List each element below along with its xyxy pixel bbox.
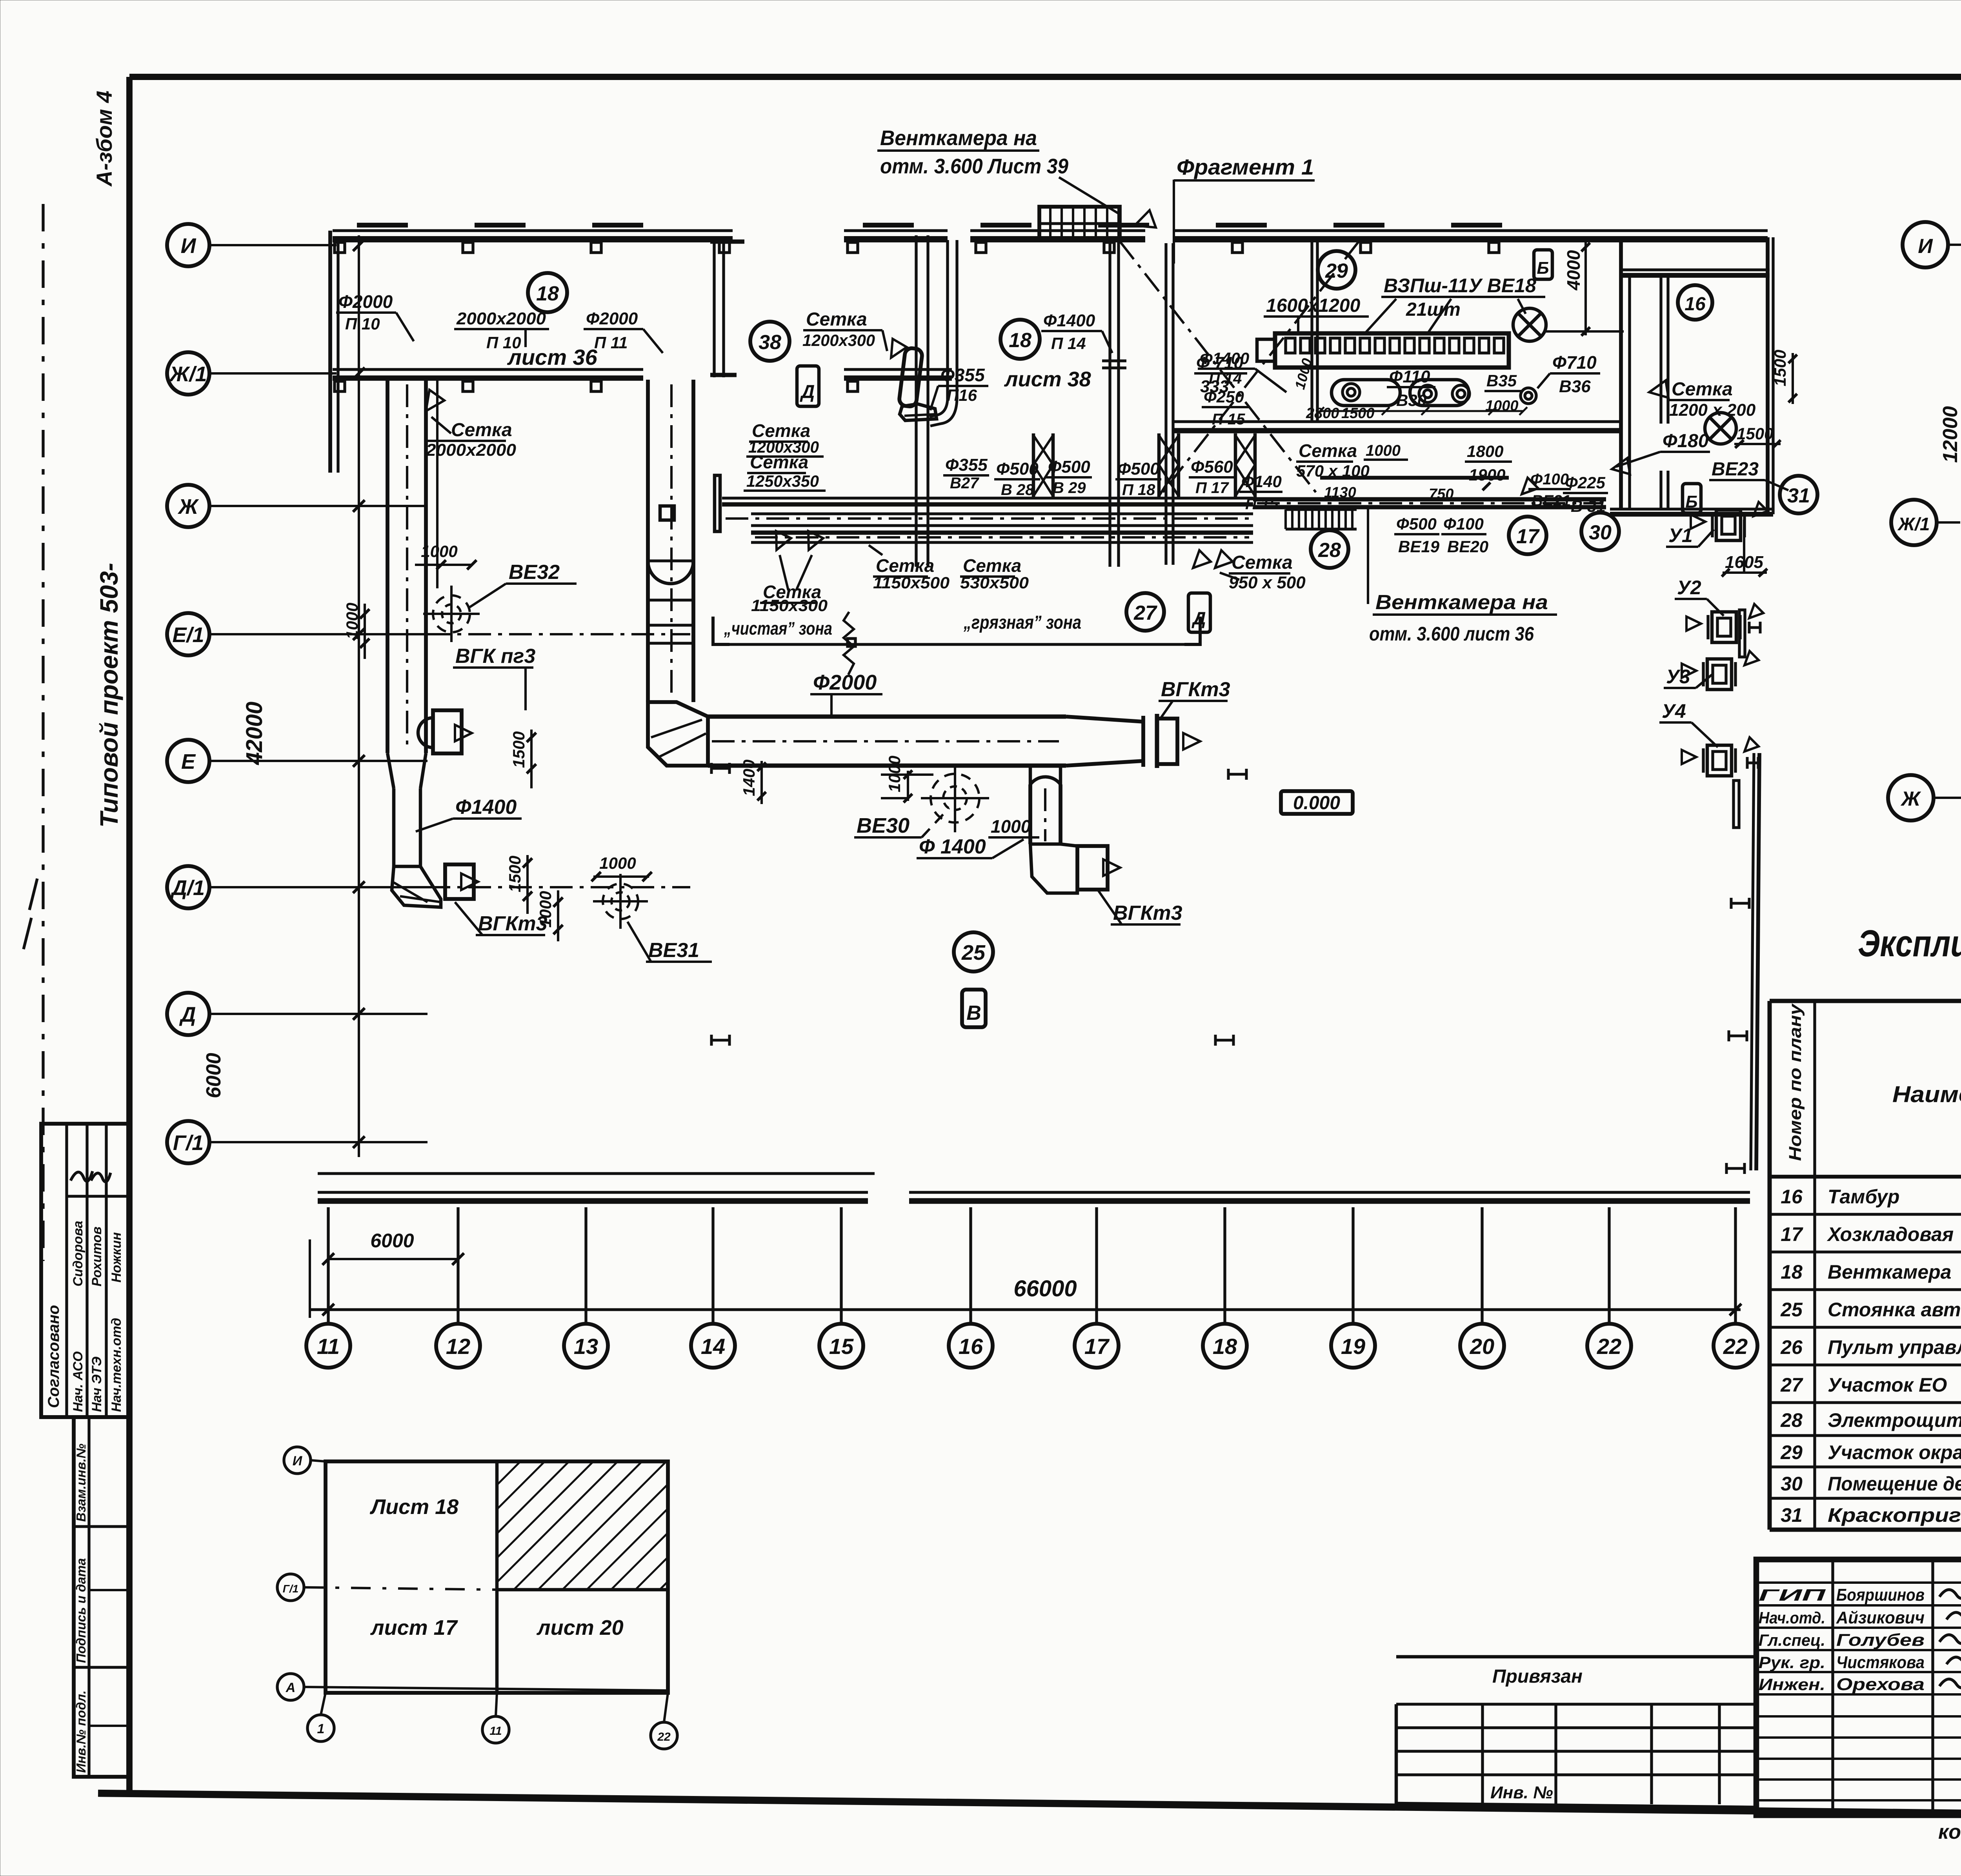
svg-text:0.000: 0.000 (1293, 793, 1340, 813)
svg-text:2000х2000: 2000х2000 (426, 440, 517, 460)
svg-text:16: 16 (959, 1334, 983, 1359)
svg-text:Ф500: Ф500 (996, 459, 1039, 479)
svg-text:П16: П16 (947, 386, 977, 404)
svg-text:1000: 1000 (343, 603, 361, 639)
svg-text:Чистякова: Чистякова (1836, 1653, 1925, 1672)
svg-text:333: 333 (1200, 377, 1229, 396)
svg-text:22: 22 (1597, 1334, 1621, 1359)
svg-text:Д: Д (1191, 608, 1206, 628)
svg-text:Б: Б (1685, 492, 1697, 511)
svg-text:ВЕ30: ВЕ30 (857, 814, 910, 837)
svg-text:П 15: П 15 (1245, 495, 1279, 513)
svg-text:Бояршинов: Бояршинов (1836, 1585, 1925, 1605)
svg-text:31: 31 (1787, 484, 1810, 507)
svg-text:Экспликация помещений: Экспликация помещений (1858, 923, 1961, 964)
svg-text:Сетка: Сетка (806, 309, 867, 330)
svg-text:1500: 1500 (1771, 350, 1789, 386)
svg-text:У4: У4 (1662, 700, 1686, 722)
svg-text:22: 22 (657, 1730, 671, 1743)
svg-text:750: 750 (1429, 486, 1453, 502)
svg-text:ВЕ20: ВЕ20 (1447, 537, 1488, 556)
svg-text:Голубев: Голубев (1836, 1630, 1925, 1650)
svg-text:Гл.спец.: Гл.спец. (1759, 1631, 1825, 1649)
svg-text:Г/1: Г/1 (283, 1583, 299, 1595)
svg-text:Нач.отд.: Нач.отд. (1759, 1609, 1825, 1627)
svg-text:1200х300: 1200х300 (802, 331, 875, 349)
svg-text:20: 20 (1470, 1334, 1494, 1359)
svg-text:1000: 1000 (991, 816, 1031, 837)
svg-text:ГИП: ГИП (1759, 1586, 1826, 1604)
svg-text:В35: В35 (1486, 371, 1517, 390)
svg-text:31: 31 (1781, 1504, 1803, 1526)
svg-text:950 х 500: 950 х 500 (1229, 573, 1306, 592)
svg-text:П 10: П 10 (345, 315, 380, 333)
svg-text:Ж/1: Ж/1 (1897, 514, 1930, 534)
svg-text:Хозкладовая: Хозкладовая (1826, 1223, 1954, 1245)
svg-text:21шт: 21шт (1406, 299, 1461, 320)
svg-text:ВЗПш-11У ВЕ18: ВЗПш-11У ВЕ18 (1384, 275, 1536, 297)
svg-text:Ф1400: Ф1400 (1043, 311, 1095, 330)
svg-text:26: 26 (1780, 1336, 1803, 1358)
svg-text:Инжен.: Инжен. (1759, 1675, 1825, 1694)
svg-text:1150х500: 1150х500 (873, 573, 950, 592)
svg-text:лист 17: лист 17 (370, 1616, 458, 1639)
svg-text:16: 16 (1781, 1186, 1803, 1208)
svg-text:В: В (966, 1002, 981, 1024)
svg-text:25: 25 (961, 941, 986, 964)
svg-text:Ф560: Ф560 (1191, 457, 1233, 477)
svg-text:Ф2000: Ф2000 (338, 291, 393, 312)
svg-text:25: 25 (1780, 1299, 1803, 1321)
svg-text:Инв. №: Инв. № (1490, 1783, 1553, 1802)
svg-text:Ф140: Ф140 (1241, 472, 1282, 491)
svg-text:Ф355: Ф355 (945, 455, 988, 475)
svg-text:1800: 1800 (1467, 442, 1503, 460)
svg-text:1: 1 (317, 1721, 325, 1736)
svg-text:лист 20: лист 20 (536, 1616, 624, 1639)
svg-text:11: 11 (489, 1725, 502, 1738)
svg-text:ВЕ23: ВЕ23 (1712, 459, 1759, 480)
svg-text:Электрощитовая: Электрощитовая (1828, 1409, 1961, 1431)
svg-text:Тамбур: Тамбур (1828, 1186, 1899, 1208)
svg-text:1000: 1000 (1485, 398, 1519, 414)
svg-text:П 15: П 15 (1212, 411, 1245, 428)
svg-text:18: 18 (1781, 1261, 1803, 1283)
svg-text:Сетка: Сетка (876, 555, 934, 576)
svg-text:Г/1: Г/1 (173, 1131, 204, 1155)
svg-text:Сетка: Сетка (963, 555, 1021, 576)
svg-text:ВЕ32: ВЕ32 (509, 561, 560, 584)
svg-text:Помещение дежурного механика: Помещение дежурного механика (1828, 1473, 1961, 1495)
svg-text:1500: 1500 (1341, 405, 1375, 422)
svg-text:Сетка: Сетка (1672, 379, 1733, 400)
svg-text:Венткамера на: Венткамера на (880, 126, 1037, 150)
svg-text:Д: Д (800, 382, 815, 402)
svg-text:Ф100: Ф100 (1443, 515, 1484, 533)
svg-text:28: 28 (1780, 1409, 1803, 1431)
svg-text:Рохитов: Рохитов (89, 1226, 104, 1286)
svg-text:И: И (181, 234, 196, 258)
svg-text:В27: В27 (950, 475, 979, 492)
svg-text:ВЕ19: ВЕ19 (1398, 537, 1440, 556)
svg-text:ВГКт3: ВГКт3 (1161, 678, 1230, 701)
svg-text:Участок окраски: Участок окраски (1828, 1441, 1961, 1463)
svg-text:лист 36: лист 36 (507, 345, 598, 369)
svg-text:19: 19 (1341, 1334, 1365, 1359)
svg-text:Орехова: Орехова (1836, 1675, 1925, 1694)
svg-text:Д/1: Д/1 (170, 876, 205, 900)
svg-text:Е/1: Е/1 (172, 623, 204, 647)
svg-text:16: 16 (1684, 294, 1706, 315)
svg-text:В30: В30 (1396, 391, 1426, 409)
svg-text:А-збом 4: А-збом 4 (92, 91, 116, 187)
svg-text:14: 14 (701, 1334, 725, 1359)
svg-text:Нач. АСО: Нач. АСО (71, 1351, 85, 1412)
svg-text:У3: У3 (1666, 666, 1690, 688)
svg-text:2000х2000: 2000х2000 (456, 309, 546, 328)
svg-text:Ф 1400: Ф 1400 (919, 835, 986, 858)
svg-text:Д: Д (179, 1003, 196, 1026)
svg-text:П 11: П 11 (594, 333, 628, 352)
svg-text:Пульт управления: Пульт управления (1828, 1336, 1961, 1358)
svg-text:4000: 4000 (1563, 250, 1584, 291)
svg-text:отм. 3.600 лист 36: отм. 3.600 лист 36 (1369, 623, 1534, 645)
svg-text:30: 30 (1781, 1473, 1803, 1495)
svg-text:Сидорова: Сидорова (71, 1221, 85, 1286)
svg-text:17: 17 (1084, 1334, 1110, 1359)
svg-text:29: 29 (1325, 260, 1348, 282)
svg-text:Ф110: Ф110 (1389, 367, 1430, 386)
svg-text:Инв.№ подл.: Инв.№ подл. (74, 1690, 88, 1773)
svg-text:18: 18 (1009, 329, 1031, 352)
svg-text:38: 38 (759, 331, 781, 354)
svg-text:27: 27 (1133, 602, 1157, 624)
svg-text:Б: Б (1537, 258, 1549, 278)
svg-text:1400: 1400 (740, 760, 758, 796)
svg-text:В 28: В 28 (1001, 481, 1034, 499)
svg-text:18: 18 (1213, 1334, 1237, 1359)
svg-text:Е: Е (181, 750, 196, 773)
svg-text:Стоянка автомобилей: Стоянка автомобилей (1828, 1299, 1961, 1321)
svg-text:Ф 710: Ф 710 (1196, 353, 1244, 373)
svg-text:Ж: Ж (177, 495, 199, 519)
svg-text:12000: 12000 (1939, 406, 1961, 463)
svg-text:отм. 3.600 Лист 39: отм. 3.600 Лист 39 (880, 155, 1068, 178)
svg-text:Лист 18: Лист 18 (369, 1495, 458, 1519)
svg-text:2800: 2800 (1306, 405, 1339, 422)
svg-text:Фрагмент 1: Фрагмент 1 (1177, 155, 1314, 179)
svg-text:ВЕ31: ВЕ31 (648, 939, 699, 962)
svg-text:Нач.техн.отд: Нач.техн.отд (109, 1318, 124, 1412)
svg-text:1250х350: 1250х350 (746, 472, 819, 490)
svg-text:лист 38: лист 38 (1004, 368, 1091, 391)
svg-text:29: 29 (1780, 1441, 1803, 1463)
svg-text:17: 17 (1781, 1223, 1803, 1245)
svg-text:ВЕ21: ВЕ21 (1532, 492, 1571, 509)
svg-text:1130: 1130 (1324, 484, 1356, 501)
svg-text:„грязная” зона: „грязная” зона (963, 612, 1081, 633)
svg-text:Сетка: Сетка (1232, 552, 1293, 573)
svg-text:18: 18 (536, 282, 559, 305)
svg-text:13: 13 (574, 1334, 598, 1359)
svg-text:Ф180: Ф180 (1663, 431, 1709, 451)
svg-text:28: 28 (1318, 539, 1341, 562)
svg-text:Ф2000: Ф2000 (586, 309, 638, 328)
svg-text:1150х300: 1150х300 (751, 596, 828, 615)
svg-text:В36: В36 (1559, 377, 1591, 396)
svg-text:Ф500: Ф500 (1117, 459, 1160, 479)
svg-text:Ж: Ж (1900, 788, 1921, 810)
svg-text:Краскоприготовительная: Краскоприготовительная (1828, 1504, 1961, 1526)
svg-text:Ф500: Ф500 (1396, 515, 1437, 533)
svg-text:12: 12 (446, 1334, 470, 1359)
svg-text:Номер по плану: Номер по плану (1786, 1003, 1805, 1161)
svg-text:П 17: П 17 (1195, 479, 1229, 497)
svg-text:1000: 1000 (421, 542, 457, 560)
svg-text:Сетка: Сетка (1299, 440, 1357, 461)
svg-text:Ф225: Ф225 (1565, 473, 1606, 492)
svg-text:1000: 1000 (599, 854, 636, 872)
svg-text:30: 30 (1589, 521, 1612, 544)
svg-text:Рук. гр.: Рук. гр. (1759, 1653, 1825, 1672)
svg-text:Сетка: Сетка (451, 420, 512, 440)
svg-text:П 18: П 18 (1122, 481, 1155, 499)
svg-text:1500: 1500 (506, 856, 524, 892)
svg-text:И: И (293, 1454, 303, 1468)
svg-text:66000: 66000 (1013, 1276, 1077, 1301)
svg-text:1000: 1000 (536, 891, 555, 928)
svg-text:Типовой проект 503-: Типовой проект 503- (95, 563, 123, 828)
svg-text:1600х1200: 1600х1200 (1266, 295, 1361, 316)
svg-text:1200 х 200: 1200 х 200 (1669, 400, 1756, 420)
svg-text:ВГК пг3: ВГК пг3 (455, 645, 535, 668)
svg-text:Ф710: Ф710 (1552, 352, 1597, 373)
svg-text:530х500: 530х500 (960, 573, 1029, 592)
svg-text:Согласовано: Согласовано (45, 1305, 62, 1408)
svg-text:копировал Абрамова: копировал Абрамова (1938, 1821, 1961, 1843)
svg-text:У1: У1 (1668, 524, 1693, 546)
svg-text:Венткамера на: Венткамера на (1375, 591, 1548, 614)
svg-text:Ф500: Ф500 (1048, 457, 1090, 477)
svg-text:П 14: П 14 (1051, 334, 1086, 353)
svg-text:15: 15 (829, 1334, 854, 1359)
svg-text:ВГКт3: ВГКт3 (1113, 902, 1182, 924)
svg-text:А: А (286, 1680, 296, 1695)
svg-text:1500: 1500 (509, 731, 528, 768)
svg-text:1000: 1000 (1366, 442, 1401, 459)
svg-text:17: 17 (1516, 525, 1540, 548)
svg-text:Венткамера: Венткамера (1828, 1261, 1951, 1283)
svg-text:Ф355: Ф355 (940, 365, 985, 385)
svg-text:Наименование: Наименование (1892, 1082, 1961, 1107)
svg-text:Нач ЭТЭ: Нач ЭТЭ (89, 1357, 104, 1412)
svg-text:Взам.инв.№: Взам.инв.№ (74, 1443, 88, 1522)
svg-text:Подпись и дата: Подпись и дата (74, 1558, 88, 1663)
svg-text:У2: У2 (1677, 577, 1701, 599)
svg-text:„чистая” зона: „чистая” зона (724, 618, 832, 639)
svg-text:6000: 6000 (370, 1230, 414, 1252)
svg-text:И: И (1918, 235, 1933, 258)
svg-text:42000: 42000 (242, 702, 267, 765)
svg-text:Ножкин: Ножкин (109, 1232, 124, 1283)
svg-text:27: 27 (1780, 1374, 1803, 1396)
svg-text:22: 22 (1723, 1334, 1748, 1359)
svg-text:Ф2000: Ф2000 (813, 671, 877, 694)
svg-text:Привязан: Привязан (1492, 1666, 1583, 1687)
svg-text:Айзикович: Айзикович (1836, 1608, 1925, 1627)
svg-text:Участок ЕО: Участок ЕО (1828, 1374, 1947, 1396)
svg-text:570 х 100: 570 х 100 (1296, 462, 1370, 480)
svg-text:Ф1400: Ф1400 (455, 796, 517, 819)
svg-text:1900: 1900 (1469, 466, 1505, 484)
svg-text:В 29: В 29 (1053, 479, 1086, 497)
svg-text:11: 11 (317, 1334, 340, 1359)
svg-text:Ж/1: Ж/1 (168, 362, 207, 386)
svg-text:6000: 6000 (202, 1053, 225, 1098)
svg-text:Сетка: Сетка (750, 452, 808, 472)
